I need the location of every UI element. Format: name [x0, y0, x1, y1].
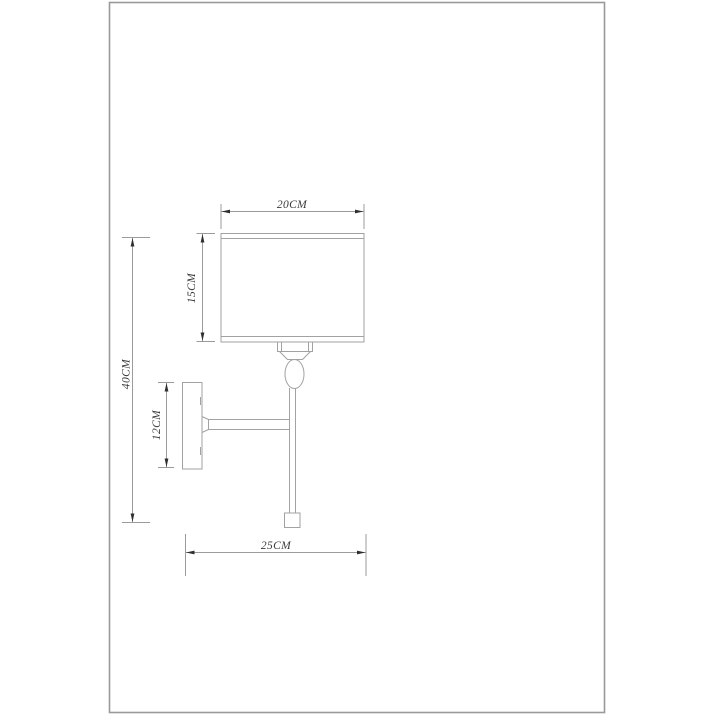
rod-foot [285, 513, 301, 528]
dim-label-overall-height: 40CM [121, 358, 133, 389]
arrow-down-backplate-height [165, 459, 169, 468]
arrow-left-overall-depth [186, 551, 195, 555]
dim-label-overall-depth: 25CM [261, 540, 292, 552]
arrow-down-overall-height [131, 514, 135, 523]
dim-label-shade-height: 15CM [186, 272, 198, 303]
arrow-left-shade-width [222, 210, 231, 214]
page-frame-border [110, 3, 605, 713]
arrow-right-overall-depth [357, 551, 366, 555]
finial-egg [285, 360, 304, 389]
arm-connector [202, 417, 209, 433]
arrow-up-backplate-height [165, 383, 169, 392]
support-arm [209, 420, 290, 430]
socket-cup [278, 342, 313, 360]
dimension-lines [122, 204, 366, 576]
technical-drawing: 20CM 15CM 40CM 12CM 25CM [0, 0, 715, 715]
lamp-object-lines [183, 234, 365, 528]
stem-rod [290, 388, 296, 513]
dim-shade-height-lines [197, 234, 216, 342]
arrow-right-shade-width [355, 210, 364, 214]
arrow-up-shade-height [201, 234, 205, 243]
dimension-labels: 20CM 15CM 40CM 12CM 25CM [121, 199, 309, 552]
arrow-up-overall-height [131, 238, 135, 247]
dim-label-backplate-height: 12CM [151, 409, 163, 440]
arrow-down-shade-height [201, 333, 205, 342]
wall-backplate [183, 383, 203, 470]
lamp-shade-outline [221, 234, 364, 343]
dim-label-shade-width: 20CM [277, 199, 308, 211]
page-canvas: 20CM 15CM 40CM 12CM 25CM [0, 0, 715, 715]
